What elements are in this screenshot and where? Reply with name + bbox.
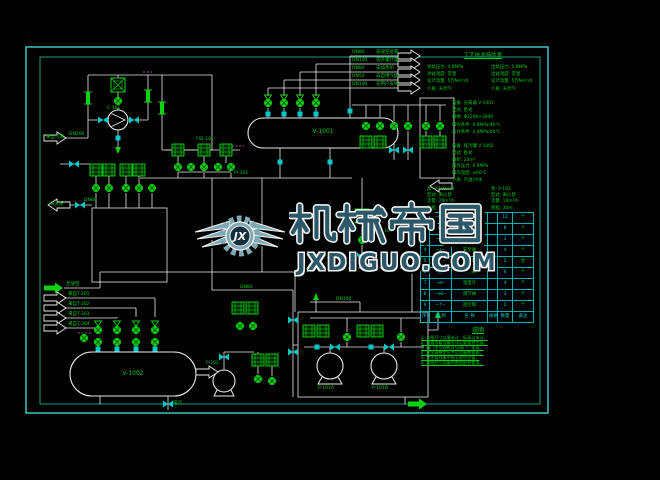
notes-block: 说明 1. 本图尺寸以毫米计，标高以米计。2. 管道等级及编号详见管道特性表。3… — [421, 322, 535, 365]
vessel-bottom-tag: V-1002 — [98, 371, 168, 376]
pump-b-tag: P-101B — [372, 386, 388, 391]
legend-header-row: 序号图 例名 称规格数量备注 — [421, 312, 534, 323]
winged-gear-logo: JX — [193, 206, 287, 270]
drain-label: 排污 — [173, 401, 182, 406]
flare-pipe-label: DN80 — [84, 198, 97, 203]
watermark-site-text: JXDIGUO.COM — [297, 250, 498, 276]
out2-pipe: DN100 — [352, 58, 367, 63]
inlet-pipe-label: DN200 — [69, 132, 84, 137]
vent-arrow — [44, 283, 63, 294]
out1-dest: 去放空总管 — [376, 50, 399, 55]
in3-label: 来自T-203 — [68, 312, 90, 317]
spec-group-pump-small: 泵: P-102型式: 离心泵流量: 10m³/h扬程: 30m — [491, 187, 519, 212]
vent-label: 至放空 — [66, 282, 80, 287]
in4-label: 来自T-204 — [68, 322, 90, 327]
spec-group-inlet: 进站压力: 4.0MPa进站温度: 常温设计流量: 5万Nm³/d介质: 天然气 — [427, 64, 468, 93]
spec-heading: 工艺技术特性表 — [448, 53, 518, 60]
out5-dest: 去用户支线 — [376, 82, 399, 87]
fiq-tag: FIQ-101 — [196, 137, 214, 142]
line-mid-label: DN80 — [240, 285, 253, 290]
pump-a-symbol — [317, 353, 343, 384]
out3-pipe: DN80 — [352, 66, 365, 71]
in1-label: 来自T-201 — [68, 292, 90, 297]
brand-characters — [289, 200, 485, 249]
line-box-label: DN100 — [336, 297, 351, 302]
out3-dest: 去加热炉 — [376, 66, 394, 71]
pi-tag: PI-101 — [234, 171, 248, 176]
out5-pipe: DN100 — [352, 82, 367, 87]
pump-b-symbol — [371, 353, 397, 384]
pump-small-symbol — [213, 370, 235, 396]
out1-pipe: DN80 — [352, 50, 365, 55]
spec-group-drain-tank: 设备: 排污罐 V-1002型式: 卧式容积: 20m³操作压力: 0.6MPa… — [452, 144, 494, 185]
compressor-tag: C-101 — [107, 106, 120, 111]
watermark: JX JXDIGUO.COM — [193, 200, 493, 282]
legend-row: 9─↑─放空帽2个 — [421, 301, 534, 312]
logo-monogram: JX — [232, 230, 247, 243]
flare-label: 去火炬 — [50, 202, 64, 207]
pump-small-tag: P-102 — [206, 361, 219, 366]
pump-a-tag: P-101A — [318, 386, 334, 391]
inlet-label: 来自气源 — [46, 135, 64, 140]
in2-label: 来自T-202 — [68, 302, 90, 307]
note-line: 6. 本图应与设备布置图配合使用。 — [421, 361, 535, 366]
legend-row: 8─⋈̂─调节阀3个 — [421, 290, 534, 301]
spec-group-separator: 设备: 分离器 V-1001型式: 卧式规格: Φ1200×3000操作条件: … — [452, 100, 500, 136]
vessel-top-tag: V-1001 — [288, 129, 358, 134]
out4-dest: 去自用气撬 — [376, 74, 399, 79]
out2-dest: 去外输计量 — [376, 58, 399, 63]
notes-title: 说明 — [421, 325, 535, 334]
compressor-symbol — [108, 110, 128, 130]
cad-drawing-canvas: 来自气源 DN200 C-101 去火炬 DN80 DN80 去放空总管 DN1… — [0, 0, 660, 480]
out4-pipe: DN50 — [352, 74, 365, 79]
spec-group-outlet: 出站压力: 1.6MPa出站温度: 常温设计流量: 5万Nm³/d介质: 天然气 — [491, 64, 532, 93]
